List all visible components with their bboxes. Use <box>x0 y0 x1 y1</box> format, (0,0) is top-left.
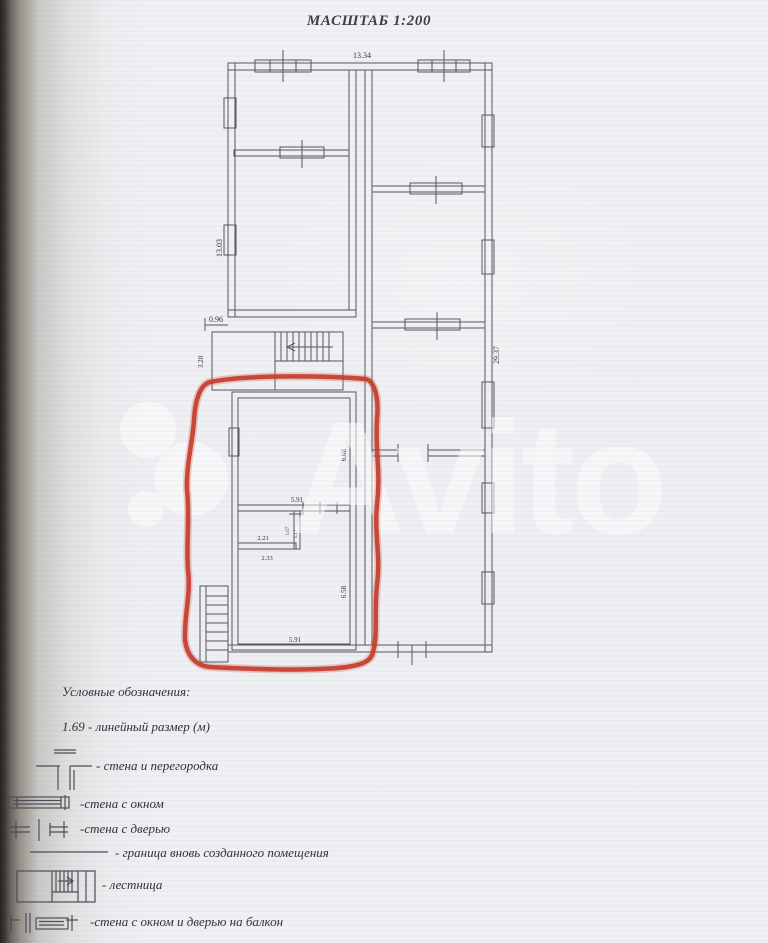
dim-vestibule: 3.20 <box>197 355 205 368</box>
avito-watermark: Avito <box>120 388 664 567</box>
dim-height-left: 13.03 <box>215 239 224 257</box>
avito-logo-circle <box>128 491 164 527</box>
dim-height-right: 29.37 <box>492 346 501 364</box>
dim-closet-top: 2.21 <box>257 535 268 542</box>
dim-closet-bottom: 2.33 <box>261 555 272 562</box>
dim-room-width-bottom: 5.91 <box>289 636 302 644</box>
dim-width-top: 13.34 <box>353 51 371 60</box>
dim-step-left: 0.96 <box>209 315 223 324</box>
avito-watermark-text: Avito <box>290 388 664 567</box>
avito-logo-circle <box>120 402 176 458</box>
floor-plan-drawing: 13.34 13.03 0.96 3.20 29.37 6.08 5.91 2.… <box>0 0 768 943</box>
scanned-floor-plan-page: МАСШТАБ 1:200 <box>0 0 768 943</box>
external-stair <box>200 586 228 662</box>
window-symbols <box>224 50 494 665</box>
dim-room-lower-height: 6.58 <box>340 585 348 598</box>
